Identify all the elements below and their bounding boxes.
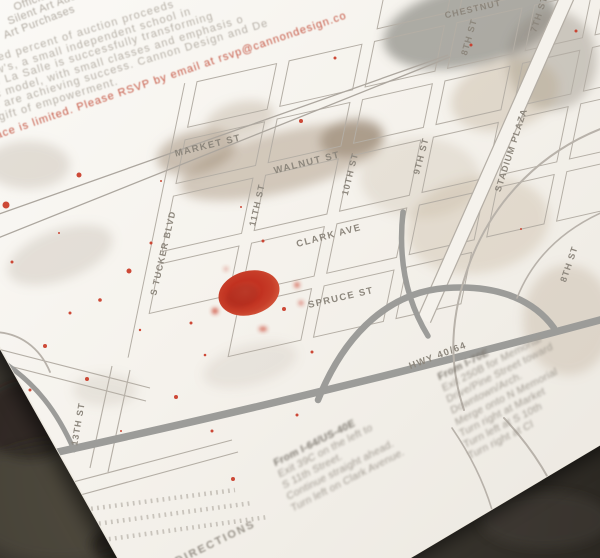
directions-heading: DIRECTIONS (173, 518, 257, 558)
directions-route-2: From I-70E Exit 250B for Memorial Drive/… (436, 318, 576, 462)
photo-of-map-invitation-card: Official Open Silent Art Auct Art Purcha… (0, 0, 600, 558)
street-label-walnut-st: WALNUT ST (273, 149, 342, 176)
street-label-chestnut: CHESTNUT (444, 0, 503, 20)
street-label-13th-st: 13TH ST (69, 402, 86, 447)
street-label-8th-st-south: 8TH ST (558, 245, 580, 284)
street-label-market-st: MARKET ST (174, 132, 243, 159)
street-label-7th-st: 7TH ST (528, 0, 549, 33)
street-label-clark-ave: CLARK AVE (295, 222, 363, 250)
street-label-s-tucker-blvd: S TUCKER BLVD (148, 210, 177, 297)
street-label-9th-st: 9TH ST (411, 137, 430, 176)
directions-route-1: From I-64/US-40E Exit 39C on the left to… (272, 401, 406, 515)
street-label-10th-st: 10TH ST (340, 152, 360, 197)
street-label-spruce-st: SPRUCE ST (307, 285, 375, 311)
street-label-stadium-plaza: STADIUM PLAZA (493, 107, 529, 193)
street-label-11th-st: 11TH ST (247, 183, 266, 227)
street-label-8th-st: 8TH ST (459, 18, 479, 57)
card-text-overlay: Official Open Silent Art Auct Art Purcha… (0, 0, 600, 558)
